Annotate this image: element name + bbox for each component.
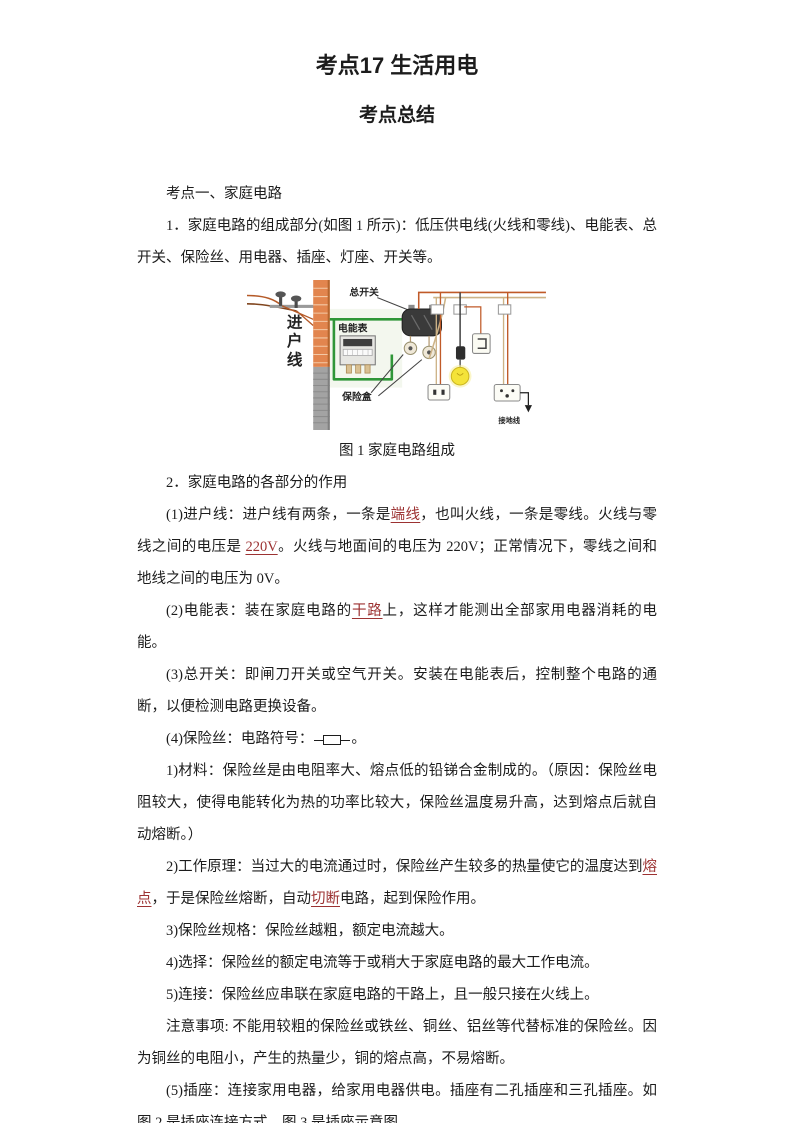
household-circuit-diagram: 进户线 电能表 (247, 280, 547, 430)
figure-caption: 图 1 家庭电路组成 (137, 435, 657, 467)
document-page: 考点17 生活用电 考点总结 考点一、家庭电路1．家庭电路的组成部分(如图 1 … (0, 0, 794, 1123)
document-body-before-figure: 考点一、家庭电路1．家庭电路的组成部分(如图 1 所示)：低压供电线(火线和零线… (137, 178, 657, 274)
paragraph: (4)保险丝：电路符号：。 (137, 723, 657, 755)
text-run: ，于是保险丝熔断，自动 (152, 891, 312, 907)
text-run: 5)连接：保险丝应串联在家庭电路的干路上，且一般只接在火线上。 (166, 987, 599, 1003)
fuse-circuit-symbol-icon (314, 734, 350, 746)
highlighted-term: 切断 (311, 891, 340, 907)
paragraph: 2)工作原理：当过大的电流通过时，保险丝产生较多的热量使它的温度达到熔点，于是保… (137, 851, 657, 915)
highlighted-term: 端线 (391, 507, 421, 523)
paragraph: 3)保险丝规格：保险丝越粗，额定电流越大。 (137, 915, 657, 947)
highlighted-term: 干路 (352, 603, 383, 619)
text-run: (3)总开关：即闸刀开关或空气开关。安装在电能表后，控制整个电路的通断，以便检测… (137, 667, 657, 715)
text-run: 考点一、家庭电路 (166, 186, 282, 202)
text-run: (2)电能表：装在家庭电路的 (166, 603, 352, 619)
paragraph: (1)进户线：进户线有两条，一条是端线，也叫火线，一条是零线。火线与零线之间的电… (137, 499, 657, 595)
page-title: 考点17 生活用电 (137, 52, 657, 80)
paragraph: 1．家庭电路的组成部分(如图 1 所示)：低压供电线(火线和零线)、电能表、总开… (137, 210, 657, 274)
label-ground-wire: 接地线 (498, 416, 520, 425)
paragraph: 5)连接：保险丝应串联在家庭电路的干路上，且一般只接在火线上。 (137, 979, 657, 1011)
paragraph: 1)材料：保险丝是由电阻率大、熔点低的铅锑合金制成的。（原因：保险丝电阻较大，使… (137, 755, 657, 851)
text-run: 1)材料：保险丝是由电阻率大、熔点低的铅锑合金制成的。（原因：保险丝电阻较大，使… (137, 763, 657, 843)
text-run: 电路，起到保险作用。 (340, 891, 485, 907)
paragraph: (5)插座：连接家用电器，给家用电器供电。插座有二孔插座和三孔插座。如图 2 是… (137, 1075, 657, 1123)
label-energy-meter: 电能表 (338, 322, 368, 335)
text-run: 2)工作原理：当过大的电流通过时，保险丝产生较多的热量使它的温度达到 (166, 859, 643, 875)
figure-household-circuit: 进户线 电能表 (137, 280, 657, 467)
text-run: (4)保险丝：电路符号： (166, 731, 313, 747)
label-fuse-box: 保险盒 (341, 390, 372, 403)
paragraph: 注意事项: 不能用较粗的保险丝或铁丝、铜丝、铝丝等代替标准的保险丝。因为铜丝的电… (137, 1011, 657, 1075)
paragraph: (2)电能表：装在家庭电路的干路上，这样才能测出全部家用电器消耗的电能。 (137, 595, 657, 659)
two-hole-socket (428, 384, 450, 400)
label-incoming-line: 进户线 (287, 314, 303, 369)
three-hole-socket: 接地线 (494, 384, 532, 424)
ground-arrow (520, 393, 532, 413)
label-main-switch: 总开关 (349, 286, 379, 299)
text-run: 2．家庭电路的各部分的作用 (166, 475, 347, 491)
text-run: (1)进户线：进户线有两条，一条是 (166, 507, 391, 523)
text-run: 注意事项: 不能用较粗的保险丝或铁丝、铜丝、铝丝等代替标准的保险丝。因为铜丝的电… (137, 1019, 657, 1067)
paragraph: 4)选择：保险丝的额定电流等于或稍大于家庭电路的最大工作电流。 (137, 947, 657, 979)
page-subtitle: 考点总结 (137, 104, 657, 128)
paragraph: (3)总开关：即闸刀开关或空气开关。安装在电能表后，控制整个电路的通断，以便检测… (137, 659, 657, 723)
text-run: 3)保险丝规格：保险丝越粗，额定电流越大。 (166, 923, 454, 939)
paragraph: 2．家庭电路的各部分的作用 (137, 467, 657, 499)
text-run: (5)插座：连接家用电器，给家用电器供电。插座有二孔插座和三孔插座。如图 2 是… (137, 1083, 657, 1123)
service-drop-insulators (247, 291, 315, 325)
text-run: 。 (351, 731, 366, 747)
wall (313, 280, 330, 430)
wall-switch (464, 307, 490, 354)
text-run: 4)选择：保险丝的额定电流等于或稍大于家庭电路的最大工作电流。 (166, 955, 599, 971)
light-bulb-icon (451, 367, 469, 385)
highlighted-term: 220V (245, 539, 277, 555)
text-run: 1．家庭电路的组成部分(如图 1 所示)：低压供电线(火线和零线)、电能表、总开… (137, 218, 657, 266)
document-body-after-figure: 2．家庭电路的各部分的作用(1)进户线：进户线有两条，一条是端线，也叫火线，一条… (137, 467, 657, 1123)
document-content: 考点17 生活用电 考点总结 考点一、家庭电路1．家庭电路的组成部分(如图 1 … (0, 0, 794, 1123)
paragraph: 考点一、家庭电路 (137, 178, 657, 210)
